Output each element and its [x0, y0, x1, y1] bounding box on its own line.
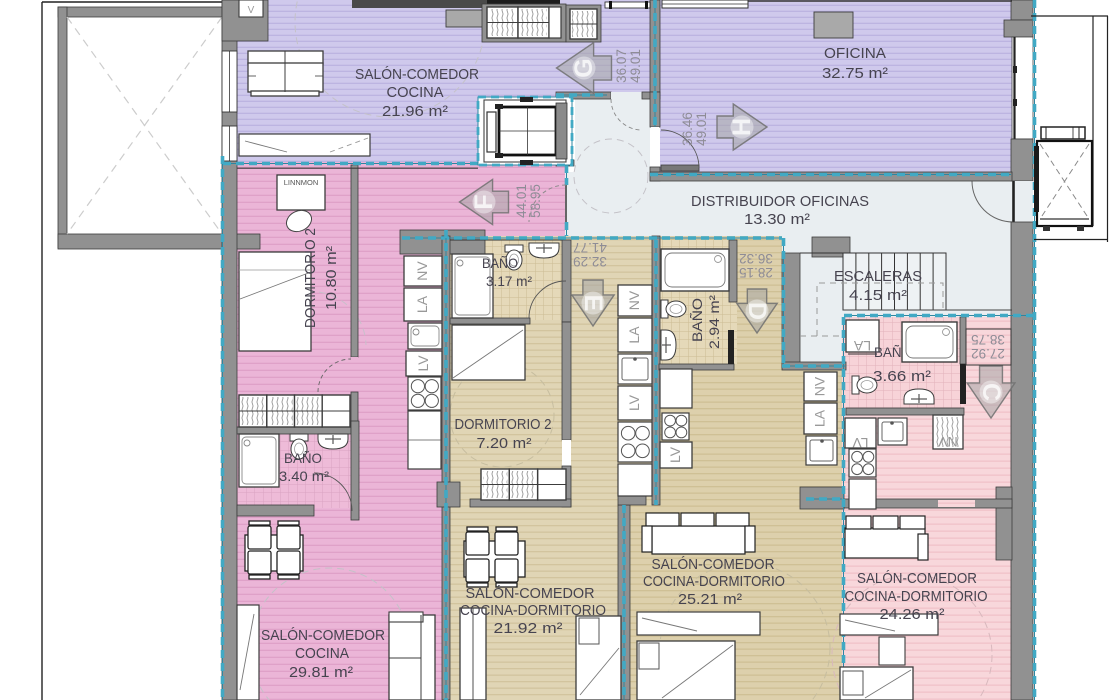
- svg-text:LV: LV: [667, 446, 683, 463]
- svg-text:38.75: 38.75: [971, 332, 1005, 347]
- svg-text:COCINA: COCINA: [295, 645, 349, 662]
- svg-text:DORMITORIO 2: DORMITORIO 2: [455, 417, 552, 433]
- svg-text:36.46: 36.46: [680, 112, 695, 146]
- svg-text:COCINA-DORMITORIO: COCINA-DORMITORIO: [643, 573, 785, 590]
- svg-text:3.40 m²: 3.40 m²: [279, 468, 329, 484]
- svg-text:V: V: [248, 5, 255, 16]
- svg-text:DISTRIBUIDOR OFICINAS: DISTRIBUIDOR OFICINAS: [691, 193, 869, 210]
- svg-text:NV: NV: [938, 434, 958, 450]
- svg-text:SALÓN-COMEDOR: SALÓN-COMEDOR: [355, 66, 479, 83]
- svg-text:LA: LA: [812, 409, 828, 427]
- svg-text:4.15 m²: 4.15 m²: [849, 288, 907, 304]
- svg-text:LA: LA: [853, 338, 871, 354]
- svg-text:25.21 m²: 25.21 m²: [678, 591, 742, 608]
- svg-text:49.01: 49.01: [628, 49, 643, 83]
- svg-text:7.20 m²: 7.20 m²: [477, 436, 532, 452]
- svg-text:24.26 m²: 24.26 m²: [880, 606, 945, 623]
- svg-text:29.81 m²: 29.81 m²: [289, 664, 353, 681]
- svg-text:36.32: 36.32: [739, 251, 773, 266]
- svg-text:LV: LV: [626, 394, 642, 411]
- svg-text:27.92: 27.92: [971, 346, 1005, 361]
- svg-text:LA: LA: [414, 295, 430, 313]
- svg-text:H: H: [728, 118, 756, 136]
- svg-text:NV: NV: [812, 376, 828, 396]
- svg-text:49.01: 49.01: [694, 112, 709, 146]
- svg-text:10.80 m²: 10.80 m²: [324, 246, 340, 310]
- svg-text:C: C: [977, 383, 1005, 401]
- svg-text:41.77: 41.77: [573, 240, 607, 255]
- svg-text:3.17 m²: 3.17 m²: [486, 273, 532, 289]
- svg-text:36.07: 36.07: [614, 49, 629, 83]
- svg-text:NV: NV: [414, 261, 430, 281]
- svg-text:SALÓN-COMEDOR: SALÓN-COMEDOR: [466, 585, 595, 602]
- svg-text:SALÓN-COMEDOR: SALÓN-COMEDOR: [857, 570, 977, 587]
- svg-text:BAÑO: BAÑO: [482, 255, 518, 271]
- svg-text:ESCALERAS: ESCALERAS: [834, 269, 922, 285]
- svg-text:44.01: 44.01: [514, 184, 529, 218]
- svg-text:21.92 m²: 21.92 m²: [494, 620, 563, 637]
- svg-text:58.95: 58.95: [528, 184, 543, 218]
- svg-text:28.15: 28.15: [739, 265, 773, 280]
- svg-text:D: D: [743, 302, 771, 320]
- svg-text:COCINA-DORMITORIO: COCINA-DORMITORIO: [460, 602, 606, 619]
- svg-text:COCINA-DORMITORIO: COCINA-DORMITORIO: [845, 588, 988, 605]
- svg-text:E: E: [579, 295, 607, 312]
- svg-text:LA: LA: [626, 326, 642, 344]
- svg-text:OFICINA: OFICINA: [824, 45, 886, 62]
- svg-text:32.75 m²: 32.75 m²: [822, 65, 888, 82]
- svg-text:21.96 m²: 21.96 m²: [382, 103, 448, 120]
- svg-text:LINNMON: LINNMON: [284, 178, 319, 187]
- svg-text:SALÓN-COMEDOR: SALÓN-COMEDOR: [261, 627, 385, 644]
- svg-text:NV: NV: [626, 290, 642, 310]
- svg-text:G: G: [570, 58, 598, 77]
- svg-text:32.29: 32.29: [573, 254, 607, 269]
- svg-text:BAÑO: BAÑO: [284, 450, 322, 466]
- svg-text:3.66 m²: 3.66 m²: [873, 368, 931, 385]
- svg-text:LV: LV: [415, 355, 431, 372]
- svg-text:BAÑO: BAÑO: [690, 298, 705, 342]
- svg-text:F: F: [470, 194, 498, 209]
- svg-text:SALÓN-COMEDOR: SALÓN-COMEDOR: [652, 556, 775, 573]
- svg-text:13.30 m²: 13.30 m²: [744, 211, 810, 228]
- svg-text:COCINA: COCINA: [387, 84, 444, 101]
- svg-text:2.94 m²: 2.94 m²: [707, 294, 722, 349]
- svg-text:DORMITORIO 2: DORMITORIO 2: [303, 228, 319, 328]
